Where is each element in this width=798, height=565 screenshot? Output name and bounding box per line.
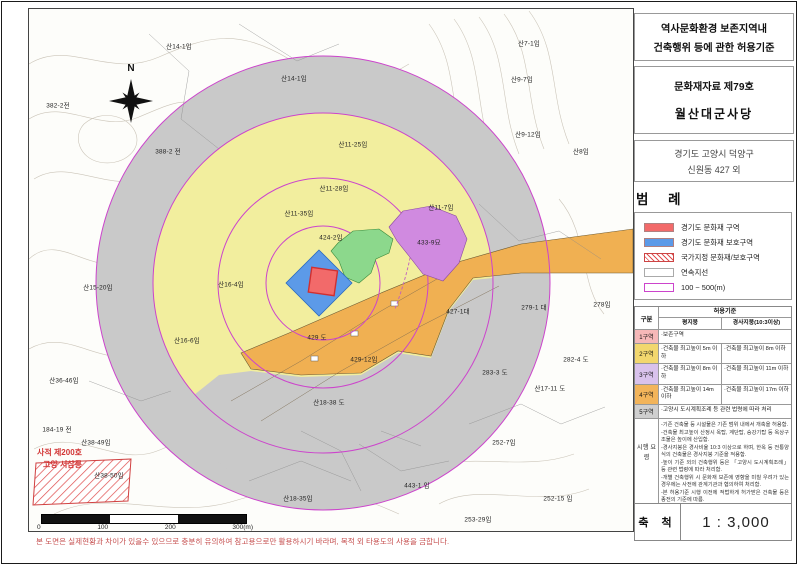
disclaimer-text: 본 도면은 실제현황과 차이가 있을수 있으므로 충분히 유의하여 참고용으로만… <box>36 536 449 547</box>
scale-box: 축 척 1 : 3,000 <box>634 503 792 541</box>
legend-item: 경기도 문화재 구역 <box>635 220 791 235</box>
parcel-label: 산18-35임 <box>283 494 313 503</box>
parcel-label: 424-2임 <box>319 233 342 242</box>
parcel-label: 산8임 <box>573 147 589 156</box>
column-header-standard: 허용기준 <box>659 307 791 318</box>
legend-item-label: 경기도 문화재 보호구역 <box>681 237 753 248</box>
parcel-label: 산11-7임 <box>428 203 453 212</box>
flat-roof-cell: ·건축물 최고높이 5m 이하 <box>659 344 721 363</box>
heritage-annotation-line: 사적 제200호 <box>37 447 82 458</box>
parcel-label: 산9-7임 <box>511 75 533 84</box>
parcel-label: 산38-50임 <box>94 471 124 480</box>
address-line: 신원동 427 외 <box>687 163 740 176</box>
scale-bar-segment <box>178 515 246 523</box>
scale-tick-label: 0 <box>37 524 41 531</box>
parcel-label: 산38-49임 <box>81 438 111 447</box>
legend-item-label: 100 ~ 500(m) <box>681 283 725 292</box>
note-line: -기존 건축물 등 시설물은 기존 범위 내에서 개축을 허용함. <box>661 422 789 429</box>
parcel-label: 283-3 도 <box>482 368 507 377</box>
legend-swatch <box>644 268 674 277</box>
parcel-label: 278임 <box>593 300 610 309</box>
legend-item-label: 연속지선 <box>681 267 708 278</box>
parcel-label: 산15-20임 <box>83 283 113 292</box>
designation-box: 문화재자료 제79호 월산대군사당 <box>634 66 794 134</box>
zone-cell: 3구역 <box>635 364 659 383</box>
site-name: 월산대군사당 <box>675 105 753 122</box>
address-box: 경기도 고양시 덕양구 신원동 427 외 <box>634 140 794 182</box>
scale-bar-segment <box>42 515 110 523</box>
notes-label: 시행 요령 <box>635 419 659 508</box>
zone-standards-table: 구분 허용기준 평지붕 경사지붕(10:3이상) 1구역 ·보존구역 2구역 ·… <box>634 306 792 509</box>
parcel-label: 282-4 도 <box>563 355 588 364</box>
cadastral-map: N <box>29 9 633 531</box>
document-title-line: 건축행위 등에 관한 허용기준 <box>654 39 775 54</box>
note-line: -높이 기준 외의 건축행위 등은 「고양시 도시계획조례」 등 관련 법령에 … <box>661 460 789 474</box>
legend-swatch <box>644 283 674 292</box>
scale-tick-label: 100 <box>97 524 108 531</box>
zone-cell: 4구역 <box>635 385 659 404</box>
legend-item: 경기도 문화재 보호구역 <box>635 235 791 250</box>
map-area: N 산14-1임382-2전산14-1임388-2 전산7-1임산9-7임산9-… <box>28 8 634 532</box>
sloped-roof-cell: ·건축물 최고높이 11m 이하 <box>721 364 791 383</box>
scale-tick-label: 200 <box>165 524 176 531</box>
parcel-label: 388-2 전 <box>155 147 180 156</box>
note-line: -건축물 최고높이 산정시 옥탑, 계단탑, 승강기탑 등 옥상구조물은 높이에… <box>661 430 789 444</box>
legend-swatch <box>644 253 674 262</box>
scale-value: 1 : 3,000 <box>681 504 791 540</box>
table-row: 4구역 ·건축물 최고높이 14m 이하 ·건축물 최고높이 17m 이하 <box>635 385 791 405</box>
parcel-label: 산7-1임 <box>518 39 540 48</box>
scale-bar-ticks: 0100200300(m) <box>37 524 253 531</box>
parcel-label: 427-1대 <box>446 307 469 316</box>
parcel-label: 산17-11 도 <box>534 384 565 393</box>
designation-number: 문화재자료 제79호 <box>674 78 754 93</box>
table-header: 구분 허용기준 평지붕 경사지붕(10:3이상) <box>635 307 791 330</box>
parcel-label: 산16-6임 <box>174 336 200 345</box>
scale-label: 축 척 <box>635 504 681 540</box>
table-row: 2구역 ·건축물 최고높이 5m 이하 ·건축물 최고높이 8m 이하 <box>635 344 791 364</box>
parcel-label: 산9-12임 <box>515 130 541 139</box>
scale-tick-label: 300(m) <box>232 524 253 531</box>
note-line: -경사지붕은 경사비율 10:3 이상으로 하며, 한옥 등 전통양식의 건축물… <box>661 445 789 459</box>
notes-body: -기존 건축물 등 시설물은 기존 범위 내에서 개축을 허용함.-건축물 최고… <box>659 419 791 508</box>
parcel-label: 산11-25임 <box>338 140 367 149</box>
parcel-label: 252-7임 <box>492 438 515 447</box>
legend-item: 연속지선 <box>635 265 791 280</box>
flat-roof-cell: ·건축물 최고높이 8m 이하 <box>659 364 721 383</box>
scale-bar-segment <box>110 515 178 523</box>
note-line: -본 허용기준 시행 이전에 적법하게 허가받은 건축물 등은 종전의 기준에 … <box>661 490 789 504</box>
parcel-label: 산18-38 도 <box>313 398 344 407</box>
column-header-zone: 구분 <box>635 307 659 329</box>
parcel-label: 산11-35임 <box>284 209 313 218</box>
compass-north-label: N <box>127 63 134 74</box>
info-panel: 역사문화환경 보존지역내 건축행위 등에 관한 허용기준 문화재자료 제79호 … <box>634 0 794 565</box>
zone-cell: 2구역 <box>635 344 659 363</box>
parcel-label: 443-1 임 <box>404 481 429 490</box>
parcel-label: 산14-1임 <box>166 42 192 51</box>
scale-bar <box>41 514 247 524</box>
heritage-zone-red <box>308 267 337 295</box>
parcel-label: 산14-1임 <box>281 74 307 83</box>
legend-item-label: 경기도 문화재 구역 <box>681 222 740 233</box>
table-row: 5구역 ·고양시 도시계획조례 등 관련 법령에 따라 처리 <box>635 405 791 419</box>
parcel-label: 279-1 대 <box>521 303 546 312</box>
zone-cell: 1구역 <box>635 330 659 343</box>
parcel-label: 429-12임 <box>350 355 377 364</box>
legend-swatch <box>644 238 674 247</box>
legend-item-label: 국가지정 문화재/보호구역 <box>681 252 760 263</box>
column-header-sloped-roof: 경사지붕(10:3이상) <box>721 318 791 329</box>
parcel-label: 382-2전 <box>46 101 69 110</box>
sloped-roof-cell: ·건축물 최고높이 17m 이하 <box>721 385 791 404</box>
parcel-label: 산11-28임 <box>319 184 348 193</box>
document-title-box: 역사문화환경 보존지역내 건축행위 등에 관한 허용기준 <box>634 13 794 61</box>
table-row: 1구역 ·보존구역 <box>635 330 791 344</box>
address-line: 경기도 고양시 덕양구 <box>674 147 754 160</box>
legend-swatch <box>644 223 674 232</box>
notes-row: 시행 요령 -기존 건축물 등 시설물은 기존 범위 내에서 개축을 허용함.-… <box>635 419 791 508</box>
legend-title: 범 례 <box>636 188 689 208</box>
table-row: 3구역 ·건축물 최고높이 8m 이하 ·건축물 최고높이 11m 이하 <box>635 364 791 384</box>
parcel-label: 산16-4임 <box>218 280 244 289</box>
flat-roof-cell: ·건축물 최고높이 14m 이하 <box>659 385 721 404</box>
parcel-label: 429 도 <box>307 333 326 342</box>
heritage-annotation-line: 고양 서삼릉 <box>43 459 82 470</box>
legend-item: 100 ~ 500(m) <box>635 280 791 295</box>
table-rows: 1구역 ·보존구역 2구역 ·건축물 최고높이 5m 이하 ·건축물 최고높이 … <box>635 330 791 419</box>
note-line: -개별 건축행위 시 문화재 보존에 영향을 미칠 우려가 있는 경우에는 사전… <box>661 475 789 489</box>
parcel-label: 253-29임 <box>464 515 491 524</box>
sloped-roof-cell: ·건축물 최고높이 8m 이하 <box>721 344 791 363</box>
legend-item: 국가지정 문화재/보호구역 <box>635 250 791 265</box>
column-header-flat-roof: 평지붕 <box>659 318 721 329</box>
parcel-label: 산36-46임 <box>49 376 79 385</box>
flat-roof-cell: ·고양시 도시계획조례 등 관련 법령에 따라 처리 <box>659 405 791 418</box>
parcel-label: 184-19 전 <box>42 425 71 434</box>
zone-cell: 5구역 <box>635 405 659 418</box>
flat-roof-cell: ·보존구역 <box>659 330 791 343</box>
legend-box: 경기도 문화재 구역 경기도 문화재 보호구역 국가지정 문화재/보호구역 연속… <box>634 212 792 300</box>
parcel-label: 252-15 임 <box>543 494 572 503</box>
document-title-line: 역사문화환경 보존지역내 <box>661 20 767 35</box>
parcel-label: 433-9묘 <box>417 238 440 247</box>
